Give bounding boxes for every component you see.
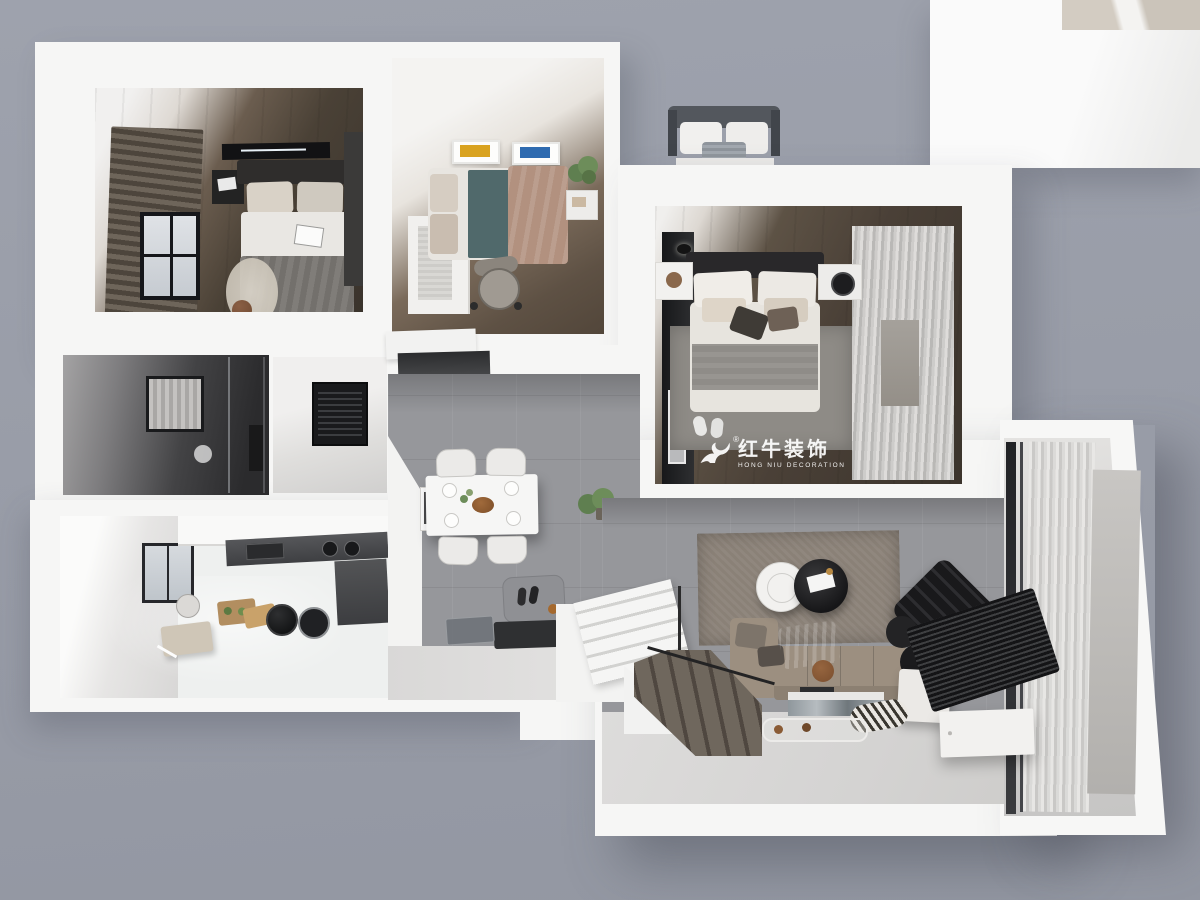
wall-art-yellow <box>452 140 500 164</box>
dining-table <box>426 475 538 537</box>
vegetables <box>223 607 232 616</box>
flowers <box>466 489 473 496</box>
kettle <box>176 594 200 618</box>
ceiling-light-bar <box>222 142 330 160</box>
curtain-wall-panel <box>881 320 919 406</box>
art-canvas <box>460 145 490 157</box>
low-bench <box>762 718 868 742</box>
art-canvas <box>520 147 550 158</box>
pillow <box>430 214 458 254</box>
blind-slats <box>318 390 362 436</box>
stair-railing-post <box>678 586 681 650</box>
dining-chair <box>487 536 527 565</box>
guest-bedroom-floor: ® 红牛装饰 HONG NIU DECORATION <box>655 206 962 484</box>
upper-unit-slab <box>930 0 1200 168</box>
bed-headboard <box>237 160 355 184</box>
shower-glass-panel <box>228 357 230 493</box>
table-items <box>572 197 586 207</box>
pillow <box>297 182 344 215</box>
cooking-pot <box>298 607 330 639</box>
bull-logo-icon: ® <box>698 438 732 471</box>
coffee-table-black <box>794 559 848 613</box>
cabinet-handle <box>948 731 952 735</box>
plate <box>504 481 519 496</box>
watermark-brand-cn: 红牛装饰 <box>738 440 846 460</box>
second-bedroom-floor <box>392 58 604 334</box>
registered-mark: ® <box>733 435 739 444</box>
shower-glass-panel <box>263 357 265 493</box>
pillow <box>246 181 293 215</box>
exterior-bed-arm-left <box>668 110 677 156</box>
exterior-bed-arm-right <box>771 110 780 156</box>
window-mullion <box>167 546 169 600</box>
light-tube <box>241 148 306 151</box>
single-bed <box>428 166 568 264</box>
chair-wheel <box>514 302 522 310</box>
sink <box>246 542 285 560</box>
watermark-brand-en: HONG NIU DECORATION <box>738 462 846 469</box>
shoe-cabinet <box>939 708 1035 757</box>
mauve-quilt <box>508 166 568 264</box>
cup <box>774 725 783 734</box>
shower-frame <box>249 425 263 471</box>
console-top <box>788 692 884 700</box>
shower-fixture <box>194 445 212 463</box>
pillow <box>430 174 458 212</box>
plate <box>442 483 457 498</box>
plant <box>568 156 598 192</box>
balcony-wall-panel <box>1087 470 1141 795</box>
window-mullion <box>144 254 196 257</box>
teal-blanket <box>468 170 510 258</box>
exterior-bed <box>668 106 780 168</box>
throw-pillow-brown <box>767 306 800 332</box>
fur-cushion <box>812 660 834 682</box>
shoe <box>517 587 527 606</box>
decor-gold <box>826 568 833 575</box>
watermark: ® 红牛装饰 HONG NIU DECORATION <box>698 432 878 476</box>
book-on-bed <box>294 224 325 248</box>
plate <box>506 511 521 526</box>
cup <box>802 723 811 732</box>
table-ring <box>767 573 797 603</box>
gray-runner-blanket <box>692 344 818 390</box>
desk-chair <box>470 258 522 314</box>
master-bedroom-floor <box>95 88 363 312</box>
wall-art-blue <box>512 142 560 165</box>
door-mat-dark <box>494 620 559 649</box>
shoe <box>528 585 539 604</box>
dining-chair <box>436 448 477 477</box>
kitchen-floor <box>60 516 388 698</box>
bathroom-window <box>146 376 204 432</box>
nightstand-items <box>217 177 236 191</box>
burner <box>322 540 339 557</box>
wall-face-wedge <box>388 436 422 652</box>
wood-tray <box>666 272 682 288</box>
speaker <box>831 272 855 296</box>
window <box>140 212 200 300</box>
dark-counter-side <box>334 559 388 626</box>
wardrobe-right <box>344 132 363 286</box>
nightstand-left <box>655 262 693 300</box>
leaves <box>582 170 596 184</box>
floor-plan-render: ® 红牛装饰 HONG NIU DECORATION <box>0 0 1200 900</box>
double-bed <box>686 252 824 412</box>
upper-unit-floor-recess <box>1062 0 1200 30</box>
throw-blanket <box>777 620 840 670</box>
nightstand-right <box>818 264 862 300</box>
glass-mat <box>445 615 495 645</box>
dark-window <box>312 382 368 446</box>
bathroom-floor <box>63 355 269 495</box>
dining-chair <box>438 536 479 565</box>
side-table <box>566 190 598 220</box>
serving-dish <box>472 497 494 513</box>
flowers <box>460 495 468 503</box>
rice-cooker <box>266 604 298 636</box>
chair-wheel <box>470 302 478 310</box>
dining-chair <box>486 448 526 477</box>
storage-room-floor <box>273 357 387 493</box>
burner <box>344 540 361 557</box>
plate <box>444 513 459 528</box>
